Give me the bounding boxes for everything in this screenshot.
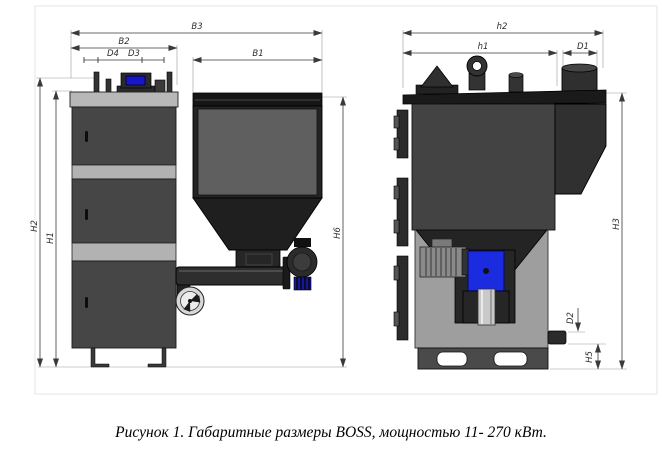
- gearbox-bolt: [483, 268, 489, 274]
- dim-label-d1: D1: [577, 42, 589, 52]
- top-plate: [70, 92, 178, 107]
- hopper-lid: [193, 93, 322, 106]
- band-upper: [72, 165, 176, 179]
- dim-label-h6: H6: [333, 227, 343, 239]
- drain-pipe-stub: [548, 331, 566, 344]
- pipe-stub-left: [94, 72, 99, 92]
- dim-label-h3: H3: [612, 218, 622, 230]
- side-upper-body: [412, 104, 555, 230]
- dim-label-b3: B3: [191, 22, 202, 32]
- draft-fan: [176, 287, 204, 315]
- dim-label-h2-front: H2: [30, 220, 40, 232]
- hopper-front-panel: [198, 109, 317, 195]
- figure-page: B3 B2 D4 D3 B1 H2 H1 H6: [0, 0, 662, 460]
- lower-door-handle: [85, 297, 88, 308]
- motor-cap: [294, 238, 311, 247]
- figure-caption: Рисунок 1. Габаритные размеры BOSS, мощн…: [0, 424, 662, 442]
- top-block: [155, 80, 165, 92]
- dim-label-h2-side: h2: [497, 22, 508, 32]
- auger-tube: [176, 267, 286, 285]
- dim-label-h5: H5: [585, 351, 595, 363]
- dim-label-d3: D3: [128, 49, 140, 59]
- boiler-top-fittings: [94, 72, 172, 93]
- boiler-front-body: [70, 92, 178, 367]
- front-view: B3 B2 D4 D3 B1 H2 H1 H6: [30, 22, 347, 367]
- valve-cone: [421, 66, 453, 87]
- dim-label-b2: B2: [118, 37, 129, 47]
- side-view: h2 h1 D1 H3 D2 H5: [394, 22, 627, 369]
- pipe-stub-short: [106, 79, 111, 92]
- dim-label-h1-side: h1: [478, 42, 489, 52]
- leg-right: [148, 348, 166, 367]
- dim-label-d4: D4: [107, 49, 119, 59]
- side-body: [394, 90, 606, 369]
- leg-left: [91, 348, 109, 367]
- auger-gearbox: [294, 277, 311, 290]
- dim-label-h1-front: H1: [46, 232, 56, 244]
- technical-drawing: B3 B2 D4 D3 B1 H2 H1 H6: [0, 0, 662, 460]
- door-hinges: [394, 110, 408, 340]
- pipe-stub-right: [167, 72, 172, 92]
- side-top-fittings: [416, 56, 597, 94]
- upper-door-handle: [85, 131, 88, 142]
- middle-door-handle: [85, 209, 88, 220]
- pulley: [478, 289, 495, 325]
- dim-label-d2: D2: [566, 312, 576, 324]
- band-lower: [72, 243, 176, 261]
- control-panel-screen: [126, 76, 145, 85]
- dim-label-b1: B1: [252, 49, 263, 59]
- feed-motor: [420, 247, 466, 277]
- skid-base: [418, 348, 548, 369]
- flue-box: [555, 104, 606, 194]
